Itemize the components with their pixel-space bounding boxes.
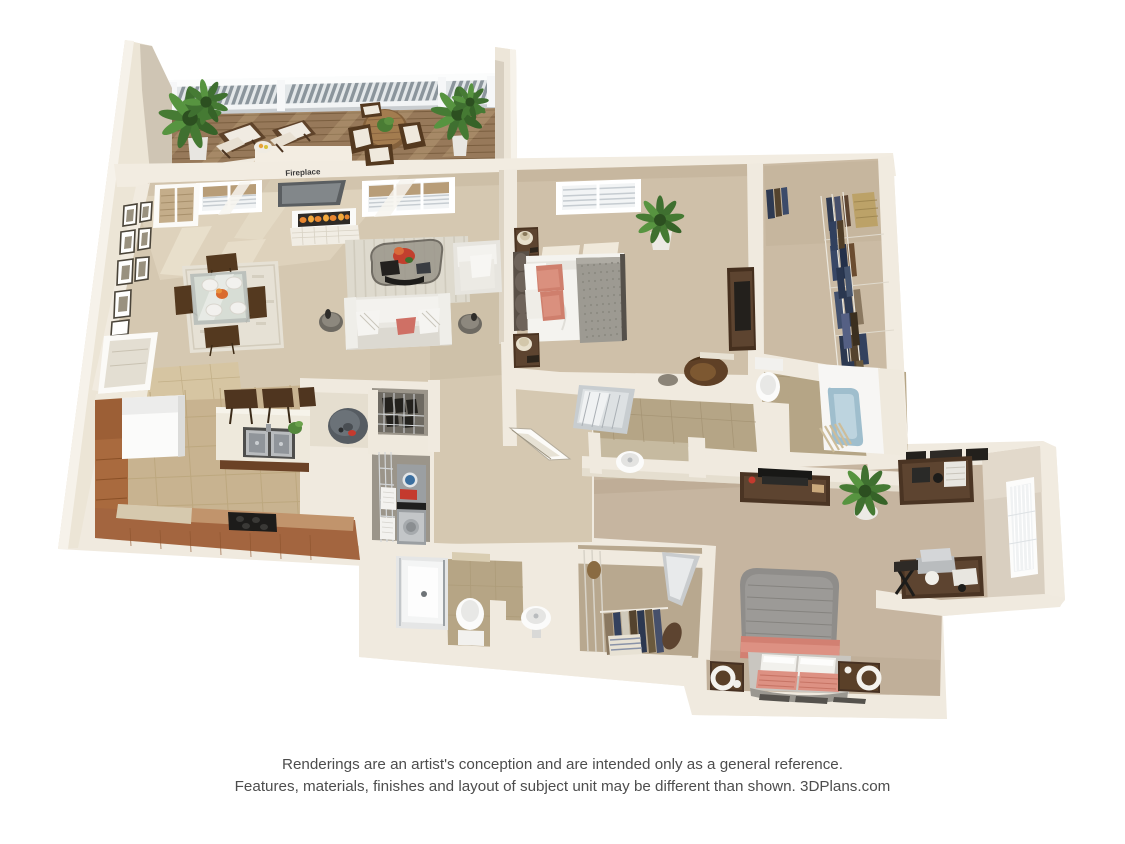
svg-text:Fireplace: Fireplace bbox=[285, 167, 321, 178]
